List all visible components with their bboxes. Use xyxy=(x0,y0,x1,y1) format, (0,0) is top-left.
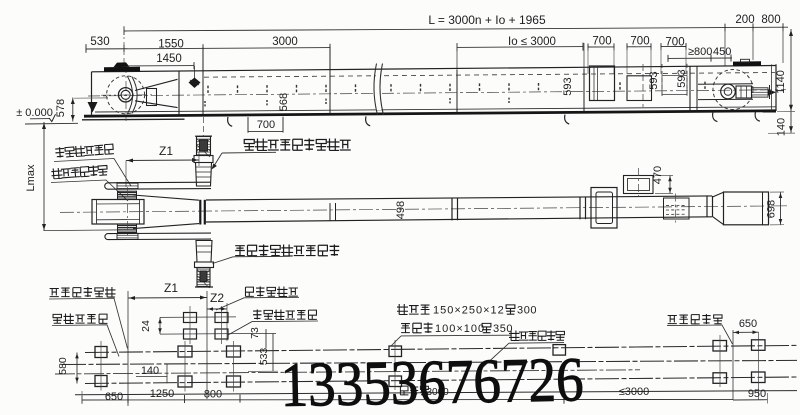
svg-text:13353676726: 13353676726 xyxy=(280,344,584,415)
svg-text:700: 700 xyxy=(665,37,684,49)
svg-text:470: 470 xyxy=(652,166,664,184)
svg-text:530: 530 xyxy=(90,36,109,48)
svg-text:580: 580 xyxy=(57,357,69,375)
svg-text:≤3000: ≤3000 xyxy=(619,386,650,398)
svg-text:Z1: Z1 xyxy=(159,144,173,158)
svg-text:800: 800 xyxy=(204,389,222,401)
svg-text:1450: 1450 xyxy=(156,53,182,65)
svg-text:533: 533 xyxy=(258,348,270,366)
svg-text:150×250×12: 150×250×12 xyxy=(433,305,505,317)
svg-text:593: 593 xyxy=(648,71,660,89)
svg-text:800: 800 xyxy=(761,14,780,26)
svg-text:Io ≤ 3000: Io ≤ 3000 xyxy=(508,36,556,48)
svg-text:Lmax: Lmax xyxy=(25,164,37,191)
svg-text:100×100: 100×100 xyxy=(435,323,485,335)
svg-text:300: 300 xyxy=(517,305,537,317)
svg-text:498: 498 xyxy=(395,201,407,219)
svg-text:950: 950 xyxy=(748,388,766,400)
svg-text:1550: 1550 xyxy=(158,39,184,51)
svg-text:200: 200 xyxy=(735,14,754,26)
svg-text:700: 700 xyxy=(630,36,649,48)
svg-text:3000: 3000 xyxy=(272,36,298,48)
svg-text:73: 73 xyxy=(249,327,261,339)
svg-text:650: 650 xyxy=(739,318,757,330)
svg-text:140: 140 xyxy=(776,118,788,136)
svg-text:700: 700 xyxy=(257,119,275,131)
svg-text:698: 698 xyxy=(766,200,778,218)
svg-text:593: 593 xyxy=(676,69,688,87)
svg-text:593: 593 xyxy=(562,77,574,95)
svg-text:Z2: Z2 xyxy=(210,291,224,305)
svg-text:± 0.000: ± 0.000 xyxy=(16,107,53,119)
svg-text:L = 3000n + Io + 1965: L = 3000n + Io + 1965 xyxy=(428,13,546,27)
svg-text:≥800: ≥800 xyxy=(688,46,712,58)
svg-text:Z1: Z1 xyxy=(164,281,178,295)
svg-text:24: 24 xyxy=(140,320,152,332)
svg-text:650: 650 xyxy=(105,391,123,403)
svg-text:700: 700 xyxy=(592,36,611,48)
svg-text:140: 140 xyxy=(141,365,159,377)
svg-text:568: 568 xyxy=(278,93,290,111)
svg-text:450: 450 xyxy=(713,46,731,58)
svg-text:578: 578 xyxy=(55,99,67,117)
svg-text:1140: 1140 xyxy=(775,70,787,94)
svg-text:1250: 1250 xyxy=(150,388,174,400)
